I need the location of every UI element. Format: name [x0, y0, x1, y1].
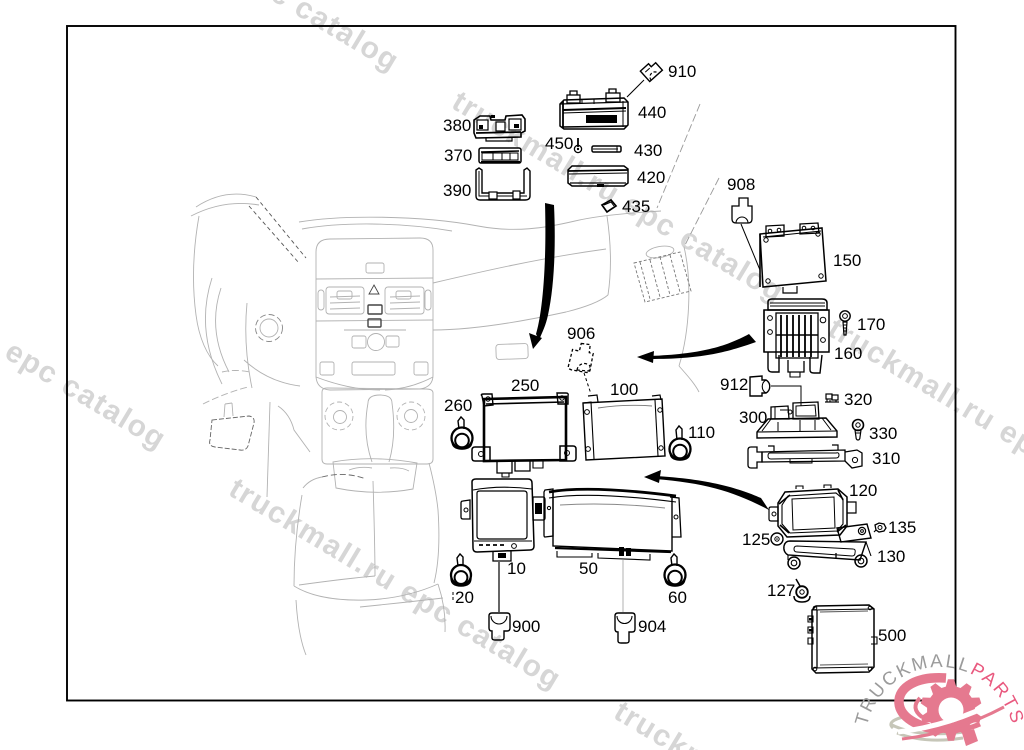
- svg-text:908: 908: [727, 175, 755, 194]
- svg-text:904: 904: [638, 617, 666, 636]
- svg-text:110: 110: [688, 423, 715, 442]
- svg-text:10: 10: [507, 559, 526, 578]
- svg-text:430: 430: [634, 141, 662, 160]
- svg-text:130: 130: [877, 547, 905, 566]
- svg-text:120: 120: [849, 481, 877, 500]
- svg-text:900: 900: [512, 617, 540, 636]
- svg-text:300: 300: [739, 408, 767, 427]
- svg-text:500: 500: [878, 626, 906, 645]
- svg-text:310: 310: [872, 449, 900, 468]
- svg-text:250: 250: [511, 376, 539, 395]
- svg-text:truckmall.ru epc catalog: truckmall.ru epc catalog: [61, 0, 405, 78]
- svg-text:127: 127: [767, 581, 795, 600]
- svg-text:170: 170: [857, 315, 885, 334]
- svg-text:150: 150: [833, 251, 861, 270]
- svg-text:truckmall.ru epc catalog: truckmall.ru epc catalog: [223, 472, 567, 697]
- svg-text:20: 20: [455, 588, 474, 607]
- svg-text:370: 370: [444, 146, 472, 165]
- svg-text:260: 260: [444, 396, 472, 415]
- svg-text:60: 60: [668, 588, 687, 607]
- svg-text:160: 160: [834, 344, 862, 363]
- svg-text:910: 910: [668, 62, 696, 81]
- svg-text:125: 125: [742, 530, 770, 549]
- svg-text:390: 390: [443, 181, 471, 200]
- svg-text:912: 912: [720, 375, 748, 394]
- svg-text:440: 440: [638, 103, 666, 122]
- svg-text:truckmall.ru epc catalog: truckmall.ru epc catalog: [0, 232, 172, 457]
- svg-text:450: 450: [545, 134, 573, 153]
- svg-text:100: 100: [610, 380, 638, 399]
- svg-text:380: 380: [443, 116, 471, 135]
- svg-text:435: 435: [622, 197, 650, 216]
- svg-text:135: 135: [888, 518, 916, 537]
- svg-text:50: 50: [579, 559, 598, 578]
- svg-text:420: 420: [637, 168, 665, 187]
- svg-text:330: 330: [869, 424, 897, 443]
- svg-text:906: 906: [567, 324, 595, 343]
- svg-text:truckmall.ru epc catalog: truckmall.ru epc catalog: [446, 85, 790, 310]
- svg-text:320: 320: [844, 390, 872, 409]
